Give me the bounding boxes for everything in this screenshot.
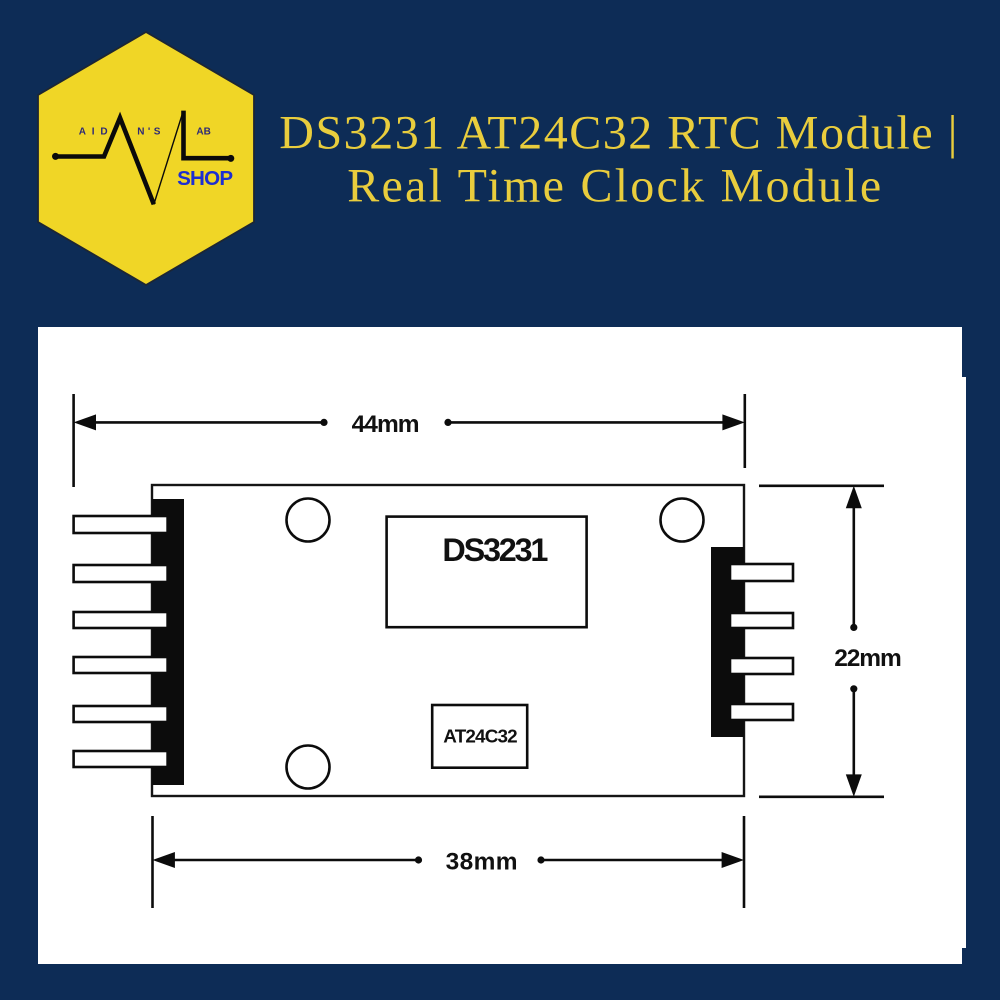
svg-text:N'S: N'S <box>137 127 161 138</box>
svg-text:AT24C32: AT24C32 <box>443 727 517 748</box>
svg-text:22mm: 22mm <box>834 645 902 672</box>
svg-text:SHOP: SHOP <box>177 167 233 190</box>
svg-text:AB: AB <box>196 127 210 138</box>
svg-text:DS3231: DS3231 <box>442 532 548 568</box>
svg-text:DS3231 AT24C32 RTC Module |: DS3231 AT24C32 RTC Module | <box>279 107 957 160</box>
svg-text:38mm: 38mm <box>446 849 518 876</box>
svg-text:AID: AID <box>79 127 108 138</box>
svg-text:44mm: 44mm <box>352 411 420 438</box>
